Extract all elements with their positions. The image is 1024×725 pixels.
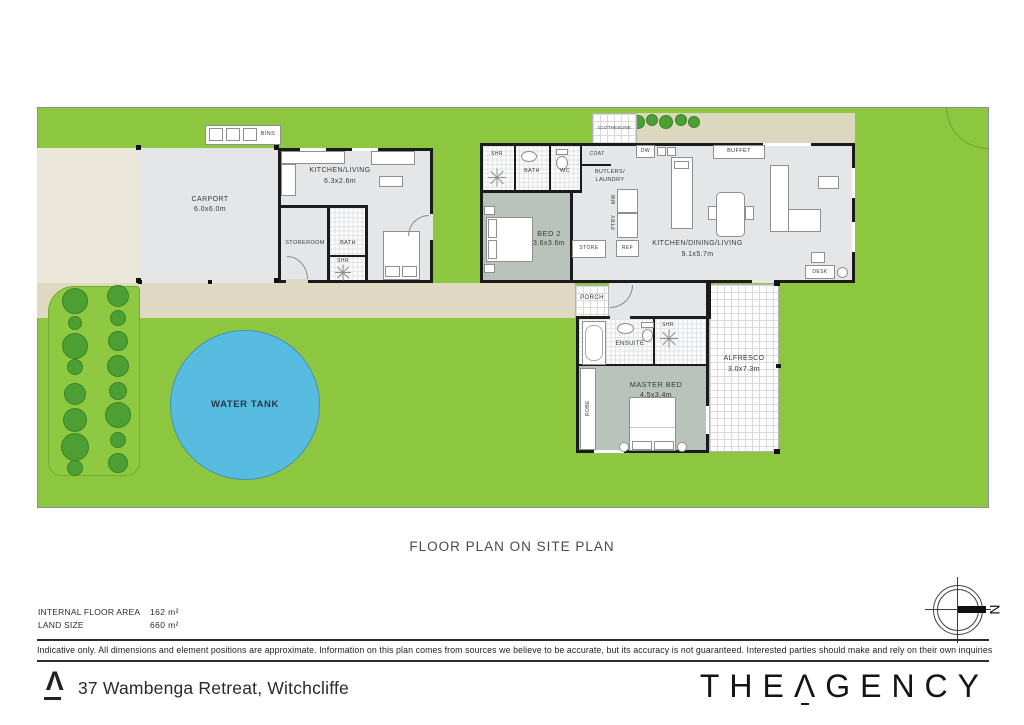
tree-icon [659, 115, 673, 129]
carport-post [274, 145, 279, 150]
tree-icon [108, 453, 128, 473]
agency-wordmark: THEΛGENCY [540, 668, 989, 705]
ensuite-label: ENSUITE [600, 341, 660, 349]
porch-label: PORCH [570, 295, 614, 303]
alfresco-post [776, 364, 781, 368]
wall [514, 146, 516, 191]
blanket-line [630, 427, 675, 428]
toilet-icon [556, 149, 568, 155]
kitchen-living-label: KITCHEN/LIVING [290, 167, 390, 176]
wall [582, 164, 611, 166]
bedside-table [484, 264, 495, 273]
tree-icon [62, 333, 88, 359]
alfresco-dims: 3.0x7.3m [712, 366, 776, 375]
tree-icon [109, 382, 127, 400]
bin-icon [243, 128, 257, 141]
floor-area-value: 162 m² [150, 607, 230, 618]
sofa [371, 151, 415, 165]
sofa [788, 209, 821, 232]
land-size-value: 660 m² [150, 620, 230, 631]
alfresco-label: ALFRESCO [712, 355, 776, 364]
robe-label: ROBE [585, 383, 591, 433]
door-opening [752, 280, 774, 283]
page-title: FLOOR PLAN ON SITE PLAN [0, 539, 1024, 556]
bath2-label: BATH [517, 168, 547, 175]
sofa [770, 165, 789, 232]
bath1-label: BATH [337, 240, 359, 247]
tree-icon [646, 114, 658, 126]
tree-icon [67, 460, 83, 476]
shower-icon [660, 329, 678, 347]
shr1-label: SHR [332, 258, 354, 264]
carport-dims: 6.0x6.0m [160, 206, 260, 215]
tree-icon [62, 288, 88, 314]
basin-icon [521, 151, 537, 162]
wall [483, 190, 582, 193]
tree-icon [61, 433, 89, 461]
butlers-label-2: LAUNDRY [582, 177, 638, 184]
clothesline-label: CLOTHESLINE [592, 125, 637, 131]
sink-unit [667, 147, 676, 156]
butlers-label-1: BUTLERS/ [582, 169, 638, 176]
tree-icon [67, 359, 83, 375]
tree-icon [105, 402, 131, 428]
tree-icon [64, 383, 86, 405]
kdl-label: KITCHEN/DINING/LIVING [635, 240, 760, 249]
door-opening [610, 316, 630, 319]
pillow [488, 240, 497, 259]
bed2-label: BED 2 [504, 229, 594, 238]
pillow [654, 441, 674, 450]
bedside-table [677, 442, 687, 452]
disclaimer: Indicative only. All dimensions and elem… [37, 645, 989, 656]
toilet-icon [641, 322, 654, 328]
dw-label: DW [636, 148, 655, 154]
wall [329, 255, 365, 257]
survey-dot [208, 280, 212, 284]
survey-dot [138, 280, 142, 284]
bin-icon [226, 128, 240, 141]
bins-label: BINS [256, 131, 280, 138]
carport-post [136, 145, 141, 150]
bed2-dims: 3.6x3.6m [504, 240, 594, 249]
agency-logo-mark: Λ [40, 668, 70, 695]
chair [745, 206, 754, 220]
master-label: MASTER BED [600, 380, 712, 389]
kitchen-living-dims: 6.3x2.6m [290, 178, 390, 187]
ptry-label: PTRY [611, 207, 617, 237]
wall [706, 283, 711, 318]
wc-label: WC [551, 168, 579, 175]
island-sink [674, 161, 689, 169]
brand-rest: GENCY [825, 668, 989, 704]
kitchen-counter [281, 151, 345, 164]
wall [281, 205, 368, 208]
window [852, 168, 855, 198]
pillow [488, 219, 497, 238]
bedside-table [619, 442, 629, 452]
carport-post [274, 278, 279, 283]
shr3-label: SHR [656, 322, 680, 328]
agency-logo-underline [44, 697, 61, 700]
door-opening [706, 406, 709, 434]
bedside-table [484, 206, 495, 215]
window [852, 222, 855, 252]
land-size-label: LAND SIZE [38, 620, 153, 631]
carport-slab [140, 148, 278, 283]
property-address: 37 Wambenga Retreat, Witchcliffe [78, 678, 498, 700]
door-opening [286, 279, 308, 283]
pillow [402, 266, 417, 277]
desk-lamp-icon [837, 267, 848, 278]
divider [37, 660, 989, 662]
pillow [385, 266, 400, 277]
shower-icon [335, 264, 351, 280]
desk-label: DESK [805, 269, 835, 275]
carport-label: CARPORT [160, 196, 260, 205]
tree-icon [63, 408, 87, 432]
floor-area-label: INTERNAL FLOOR AREA [38, 607, 153, 618]
sink-unit [657, 147, 666, 156]
storeroom-label: STOREROOM [283, 240, 327, 247]
tree-icon [675, 114, 687, 126]
alfresco-post [774, 281, 780, 286]
tree-icon [688, 116, 700, 128]
chair [708, 206, 717, 220]
appliance [617, 213, 638, 238]
shower-icon [488, 168, 506, 186]
tree-icon [108, 331, 128, 351]
wall [576, 316, 579, 453]
coat-label: COAT [583, 151, 611, 157]
compass-north-label: N [985, 602, 1003, 618]
tree-icon [107, 355, 129, 377]
wall [576, 316, 711, 319]
alfresco-post [774, 449, 780, 454]
shr2-label: SHR [484, 151, 510, 157]
bin-icon [209, 128, 223, 141]
chair [811, 252, 825, 263]
tree-icon [107, 285, 129, 307]
dining-table [716, 192, 745, 237]
driveway [37, 148, 140, 283]
side-table [818, 176, 839, 189]
wall [365, 205, 368, 280]
brand-a: Λ [794, 668, 825, 705]
wall [327, 205, 330, 280]
basin-icon [617, 323, 634, 334]
kdl-dims: 9.1x5.7m [650, 251, 745, 260]
floor-plan-page: WATER TANK CLOTHESLINE BINS CARPORT 6.0x… [0, 0, 1024, 725]
window [763, 143, 811, 146]
appliance [617, 189, 638, 213]
brand-the: THE [700, 668, 794, 704]
pillow [632, 441, 652, 450]
water-tank-label: WATER TANK [185, 399, 305, 411]
divider [37, 639, 989, 641]
tree-icon [68, 316, 82, 330]
tree-icon [110, 310, 126, 326]
buffet-label: BUFFET [713, 148, 765, 155]
master-dims: 4.5x3.4m [600, 392, 712, 401]
door-opening [430, 214, 433, 240]
tree-icon [110, 432, 126, 448]
compass-needle [958, 606, 986, 613]
